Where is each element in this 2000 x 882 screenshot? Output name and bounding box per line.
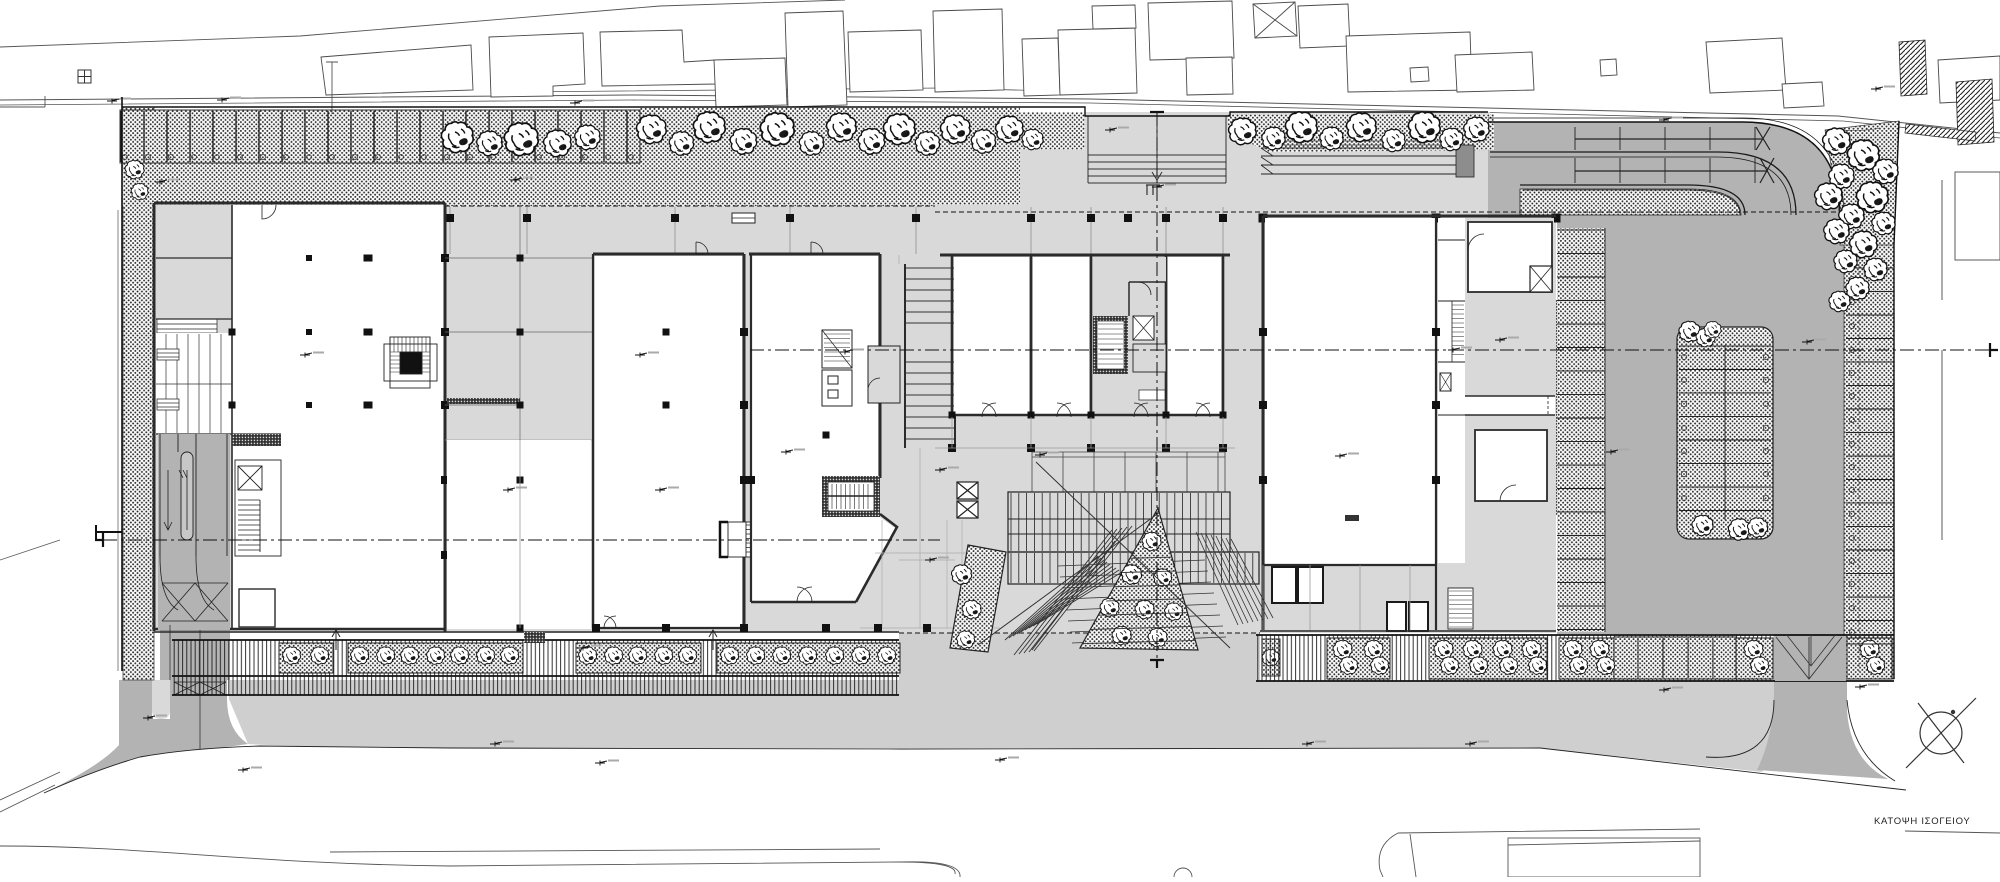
- svg-text:ΚΑΤΟΨΗ ΙΣΟΓΕΙΟΥ: ΚΑΤΟΨΗ ΙΣΟΓΕΙΟΥ: [1874, 816, 1970, 827]
